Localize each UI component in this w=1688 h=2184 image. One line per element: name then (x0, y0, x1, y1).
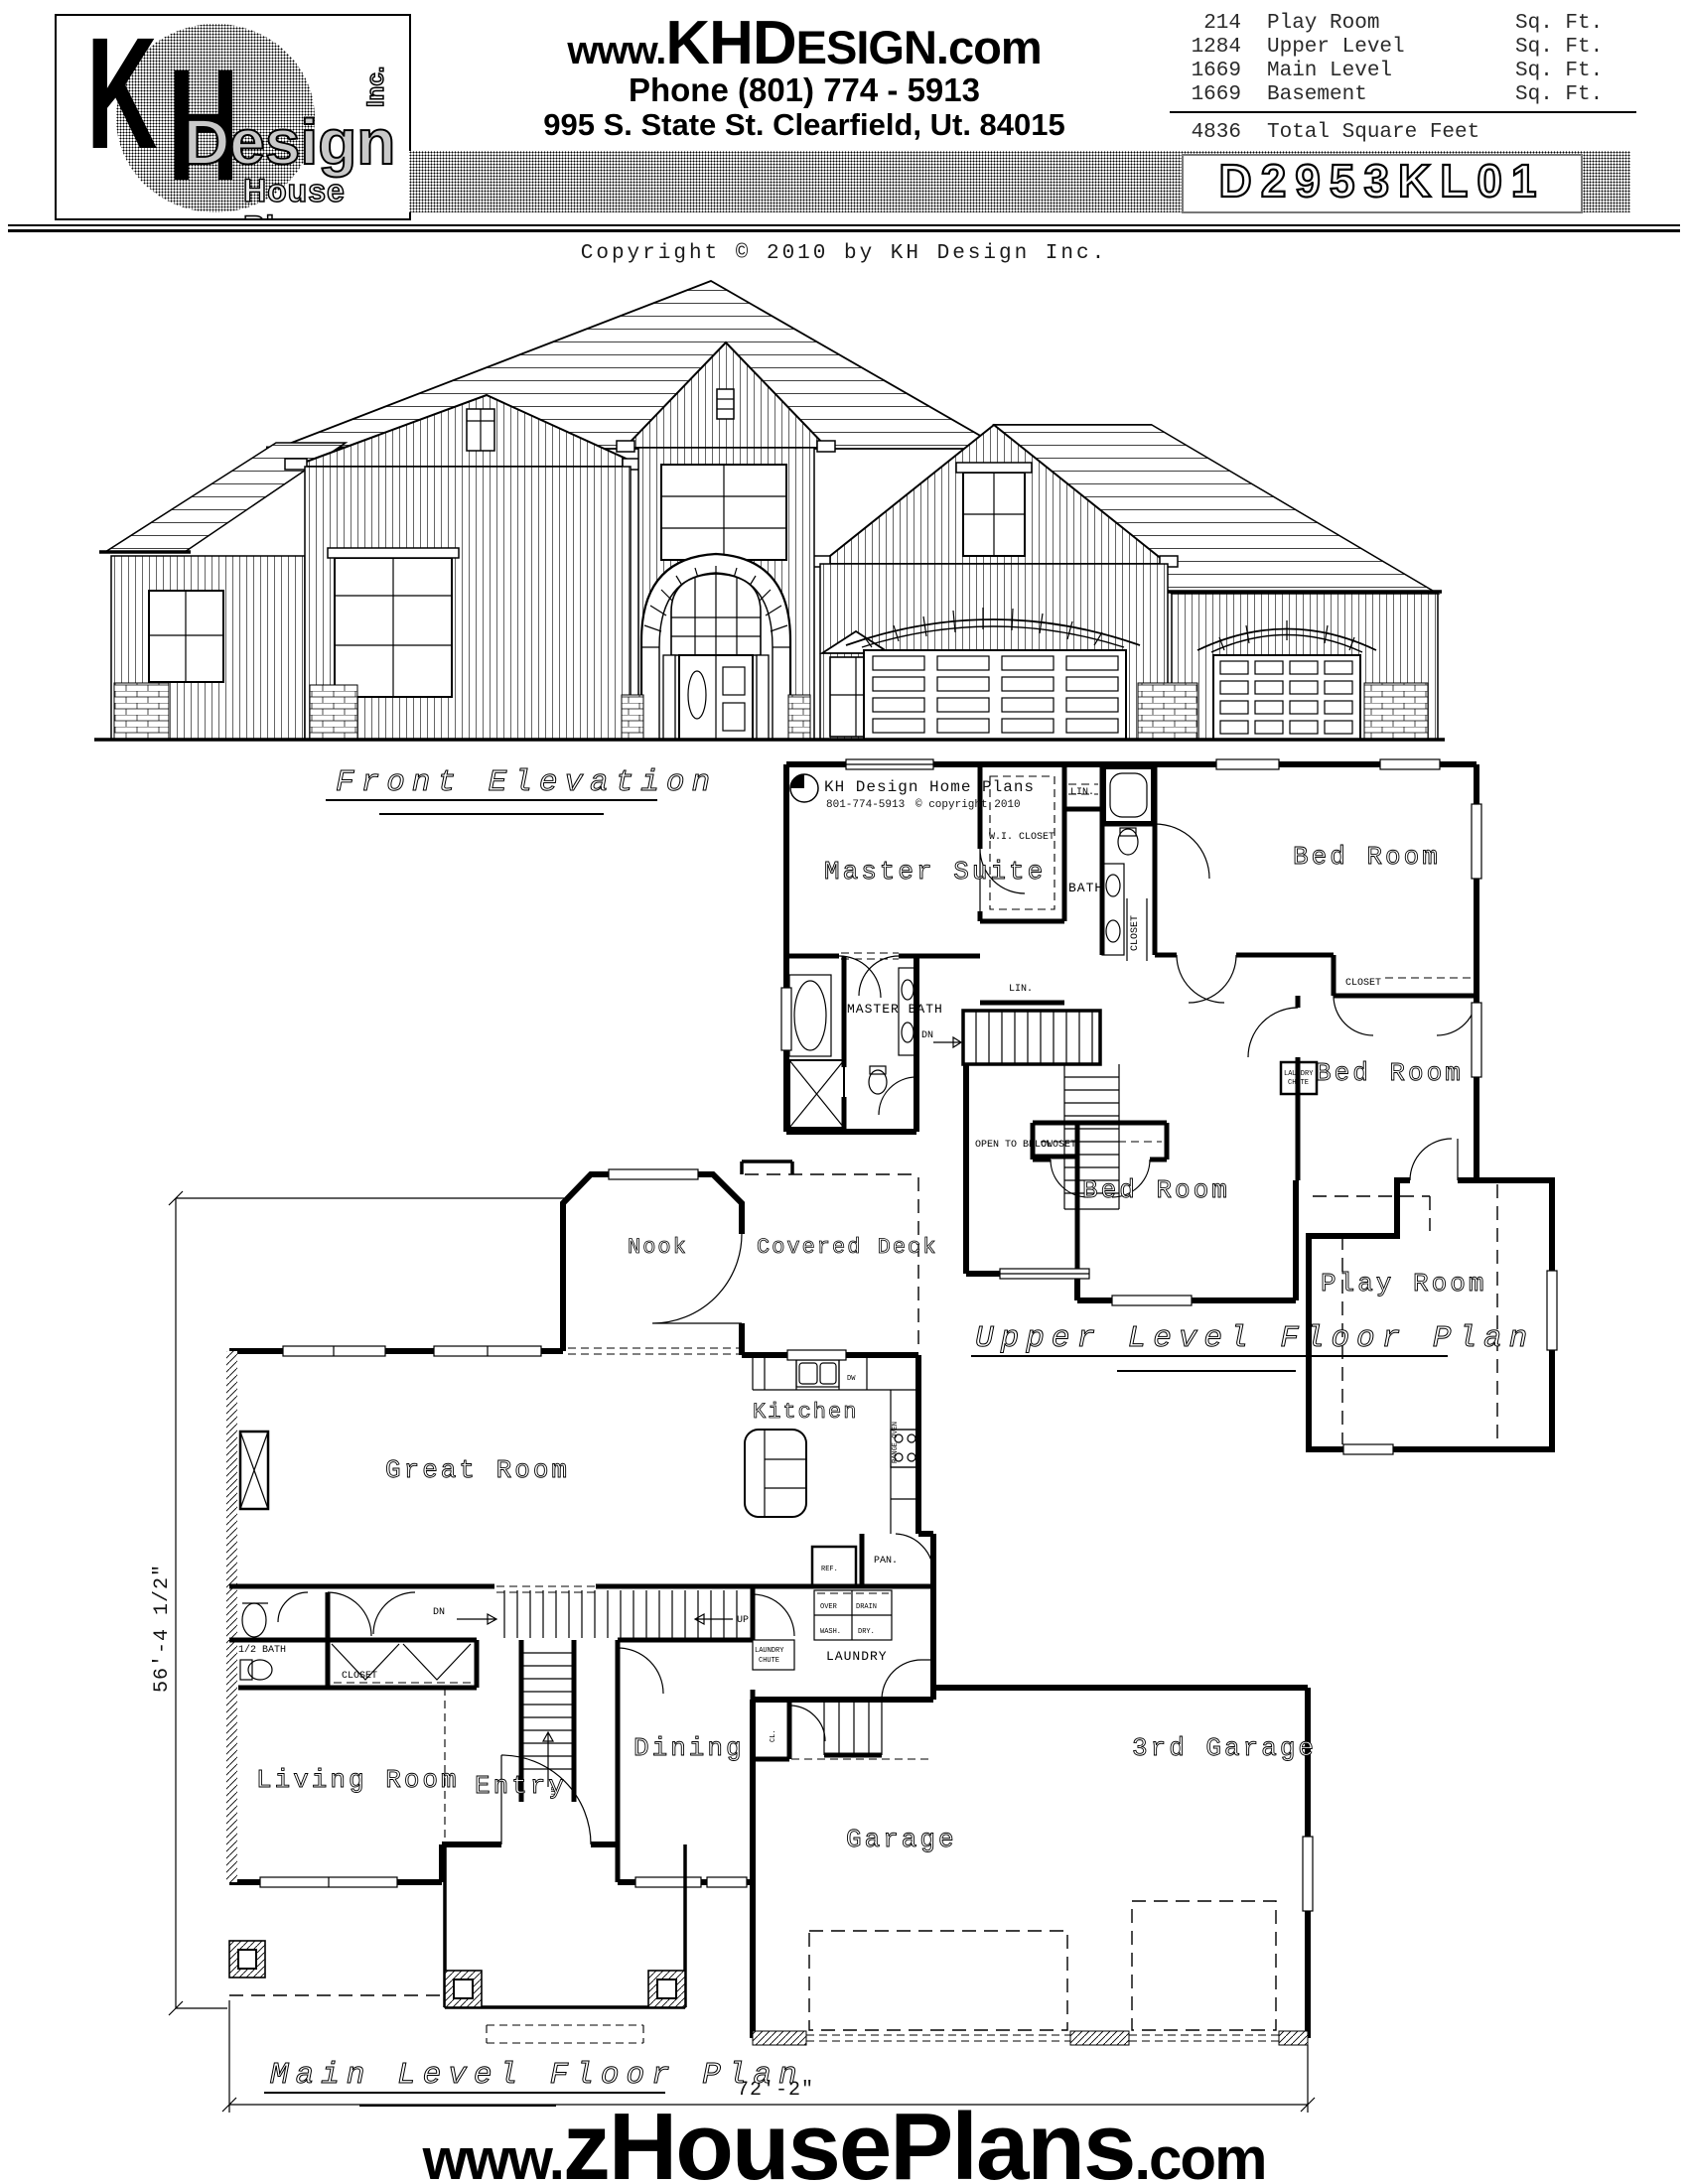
upper-chute-2: CHUTE (1288, 1079, 1309, 1087)
upper-plan-title: Upper Level Floor Plan (975, 1321, 1534, 1356)
label-master-suite: Master Suite (824, 857, 1046, 887)
footer-com: .com (1134, 2125, 1265, 2184)
main-chute-2: CHUTE (759, 1657, 779, 1665)
label-closet-main: CLOSET (342, 1671, 377, 1682)
main-up-label: UP (737, 1615, 749, 1626)
label-pan: PAN. (874, 1556, 898, 1567)
upper-logo-title: KH Design Home Plans (824, 778, 1035, 796)
label-dining: Dining (633, 1733, 745, 1763)
plan-sheet: K H Design Inc. House Plans www.KHDESIGN… (0, 0, 1688, 2184)
label-3rd-garage: 3rd Garage (1132, 1733, 1317, 1763)
label-kitchen: Kitchen (753, 1400, 858, 1425)
upper-logo-phone: 801-774-5913 (826, 799, 905, 811)
label-entry: Entry (475, 1771, 567, 1801)
label-play-room: Play Room (1321, 1269, 1486, 1298)
label-dry: DRY. (858, 1628, 875, 1636)
label-ref: REF. (821, 1566, 838, 1573)
label-nook: Nook (628, 1235, 688, 1260)
label-cl: CL. (770, 1729, 777, 1742)
upper-dn-label: DN (921, 1030, 933, 1041)
label-closet-mid: CLOSET (1041, 1140, 1076, 1151)
footer-www: www. (423, 2127, 563, 2184)
front-elevation-title: Front Elevation (336, 765, 717, 800)
label-bedroom-1: Bed Room (1293, 842, 1441, 872)
main-dn-label: DN (433, 1607, 445, 1618)
label-bath: BATH (1068, 881, 1103, 895)
label-drain: DRAIN (856, 1603, 877, 1611)
label-half-bath: 1/2 BATH (238, 1644, 286, 1656)
label-bedroom-3: Bed Room (1082, 1175, 1230, 1205)
label-covered-deck: Covered Deck (757, 1235, 937, 1260)
upper-chute-1: LAUNDRY (1284, 1070, 1314, 1078)
footer-zhouseplans: zHousePlans (563, 2094, 1135, 2184)
label-wi-closet: W.I. CLOSET (989, 832, 1055, 843)
label-wash: WASH. (820, 1628, 841, 1636)
dim-height: 56'-4 1/2" (151, 1564, 174, 1693)
footer-watermark: www.zHousePlans.com (0, 2093, 1688, 2184)
label-range-oven: RANGE OVEN (892, 1422, 900, 1463)
label-great-room: Great Room (385, 1455, 570, 1485)
label-garage: Garage (846, 1825, 957, 1854)
label-closet-vert: CLOSET (1130, 915, 1141, 951)
label-dw: DW (847, 1375, 856, 1383)
label-bedroom-2: Bed Room (1316, 1058, 1464, 1088)
label-living-room: Living Room (256, 1765, 460, 1795)
label-lin-mid: LIN. (1009, 984, 1033, 995)
label-laundry: LAUNDRY (826, 1649, 888, 1664)
main-chute-1: LAUNDRY (755, 1647, 784, 1655)
label-closet-right: CLOSET (1345, 978, 1381, 989)
upper-level-plan: DN (781, 759, 1557, 1454)
label-lin-top: LIN. (1070, 787, 1094, 798)
upper-logo-copyright: © copyright 2010 (915, 799, 1021, 811)
label-over: OVER (820, 1603, 838, 1611)
main-plan-title: Main Level Floor Plan (270, 2058, 804, 2093)
plan-drawings: Front Elevation DN (0, 0, 1688, 2184)
label-master-bath: MASTER BATH (847, 1002, 943, 1017)
front-elevation-drawing: Front Elevation (94, 281, 1445, 814)
